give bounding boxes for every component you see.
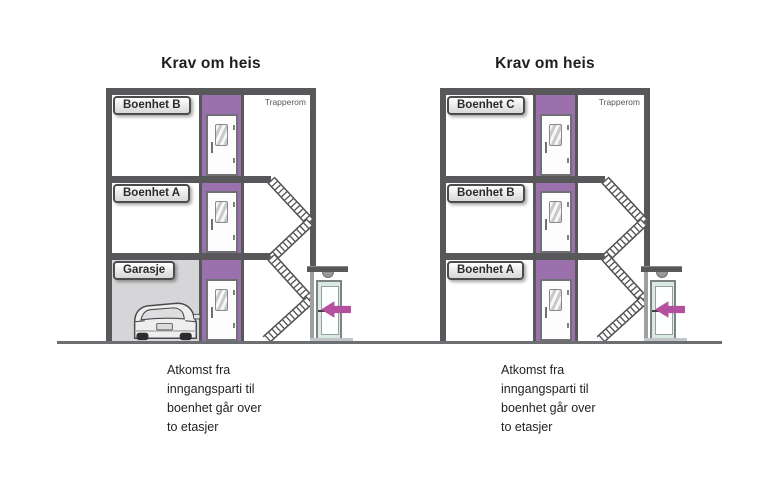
door-hinge-icon [567,202,569,207]
elevator-door [540,279,572,341]
elevator-door-window-icon [215,124,228,146]
car-icon [124,295,206,341]
elevator-door-handle [545,142,547,153]
left-wall [440,88,446,341]
door-hinge-icon [567,235,569,240]
caption-line: to etasjer [501,418,641,437]
elevator-door-window-icon [549,124,562,146]
floor-label: Boenhet C [447,96,525,115]
door-hinge-icon [233,290,235,295]
elevator-door-window-icon [549,201,562,223]
floor-label: Boenhet A [447,261,524,280]
elevator-door [206,191,238,253]
stairs-icon [570,173,655,347]
floor-label: Garasje [113,261,175,280]
door-hinge-icon [567,323,569,328]
caption-line: Atkomst fra [167,361,307,380]
caption: Atkomst fra inngangsparti til boenhet gå… [167,361,307,437]
entrance-arrow-icon [321,299,352,320]
stair-flight [271,257,310,300]
caption-line: Atkomst fra [501,361,641,380]
door-hinge-icon [233,125,235,130]
panel-left: Krav om heis [106,55,366,475]
left-wall [106,88,112,341]
stair-flight [606,222,644,258]
caption-line: to etasjer [167,418,307,437]
panel-title: Krav om heis [106,55,316,73]
door-hinge-icon [567,158,569,163]
stair-flight [605,180,644,222]
building-cross-section: Boenhet B Boenhet A Garasje Trapperom [106,88,366,348]
roof-slab [440,88,650,95]
elevator-door-window-icon [549,289,562,311]
caption-line: boenhet går over [501,399,641,418]
elevator-door-handle [211,307,213,318]
caption: Atkomst fra inngangsparti til boenhet gå… [501,361,641,437]
stair-flight [605,257,644,300]
stairwell-label: Trapperom [580,97,640,107]
elevator-door-window-icon [215,289,228,311]
entrance-lamp-icon [322,272,334,278]
elevator-door [206,279,238,341]
caption-line: inngangsparti til [501,380,641,399]
ground-line [57,341,722,344]
stair-flight [271,180,310,222]
panel-right: Krav om heis [440,55,700,475]
elevator-door-window-icon [215,201,228,223]
door-hinge-icon [567,290,569,295]
stairwell-label: Trapperom [246,97,306,107]
elevator-door-handle [545,307,547,318]
floor-label: Boenhet A [113,184,190,203]
elevator-door-handle [211,219,213,230]
entrance-arrow-icon [655,299,686,320]
elevator-door [540,191,572,253]
floor-label: Boenhet B [447,184,525,203]
door-hinge-icon [233,323,235,328]
entrance-side-wall [644,272,648,341]
stair-flight [600,300,644,340]
elevator-door-handle [545,219,547,230]
roof-slab [106,88,316,95]
stairs-icon [236,173,321,347]
floor-label: Boenhet B [113,96,191,115]
door-hinge-icon [233,158,235,163]
diagram-canvas: Krav om heis [0,0,768,483]
building-cross-section: Boenhet C Boenhet B Boenhet A Trapperom [440,88,700,348]
door-hinge-icon [567,125,569,130]
caption-line: inngangsparti til [167,380,307,399]
door-hinge-icon [233,235,235,240]
entrance-side-wall [310,272,314,341]
elevator-door [540,114,572,176]
caption-line: boenhet går over [167,399,307,418]
panel-title: Krav om heis [440,55,650,73]
stair-flight [272,222,310,258]
elevator-door-handle [211,142,213,153]
entrance-lamp-icon [656,272,668,278]
elevator-door [206,114,238,176]
door-hinge-icon [233,202,235,207]
stair-flight [266,300,310,340]
